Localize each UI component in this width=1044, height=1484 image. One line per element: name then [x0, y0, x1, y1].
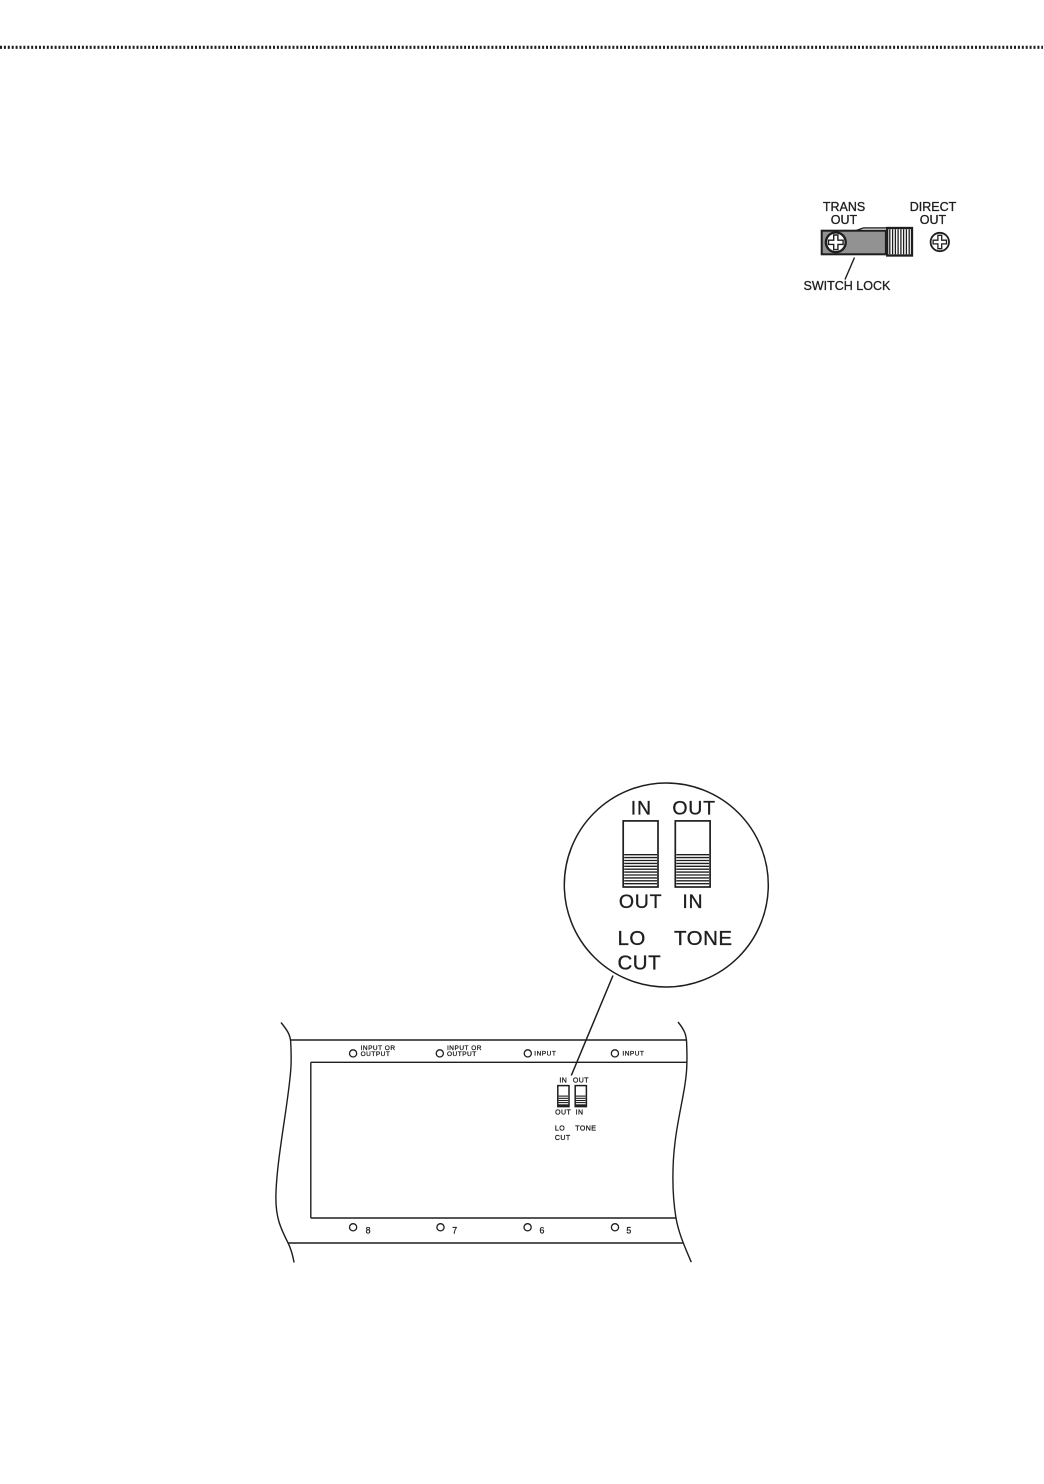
svg-text:TRANS: TRANS: [823, 200, 865, 214]
svg-text:8: 8: [366, 1226, 371, 1236]
svg-text:IN: IN: [576, 1109, 584, 1116]
svg-text:IN: IN: [682, 891, 703, 913]
svg-text:IN: IN: [631, 797, 652, 819]
svg-text:OUT: OUT: [920, 213, 947, 227]
svg-text:IN: IN: [559, 1077, 567, 1084]
svg-text:LO: LO: [618, 927, 646, 950]
svg-text:6: 6: [540, 1226, 545, 1236]
svg-text:OUT: OUT: [619, 891, 663, 913]
svg-text:OUT: OUT: [831, 213, 858, 227]
svg-text:OUT: OUT: [555, 1109, 571, 1116]
svg-text:CUT: CUT: [618, 951, 662, 974]
svg-text:INPUT: INPUT: [622, 1050, 644, 1057]
svg-text:SWITCH LOCK: SWITCH LOCK: [804, 279, 891, 293]
svg-text:TONE: TONE: [575, 1126, 596, 1133]
svg-text:OUTPUT: OUTPUT: [447, 1051, 477, 1058]
svg-text:7: 7: [452, 1226, 457, 1236]
svg-text:5: 5: [626, 1226, 631, 1236]
svg-text:INPUT: INPUT: [534, 1050, 556, 1057]
svg-text:OUTPUT: OUTPUT: [361, 1051, 391, 1058]
svg-text:TONE: TONE: [674, 927, 733, 950]
svg-text:OUT: OUT: [672, 797, 716, 819]
svg-text:LO: LO: [555, 1126, 565, 1133]
svg-text:OUT: OUT: [573, 1077, 589, 1084]
svg-text:CUT: CUT: [555, 1135, 571, 1142]
svg-text:DIRECT: DIRECT: [910, 200, 957, 214]
